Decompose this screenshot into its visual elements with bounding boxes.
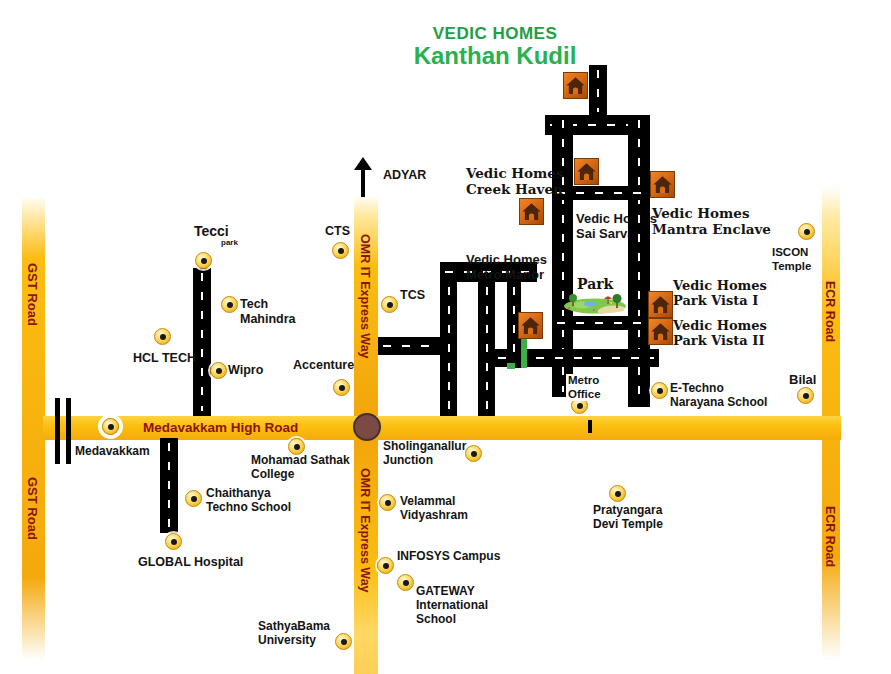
label-chaithanya: ChaithanyaTechno School: [206, 486, 291, 514]
marker-gateway: [397, 574, 414, 591]
marker-infosys: [377, 557, 394, 574]
railway-bar-1: [55, 398, 60, 464]
label-line: University: [258, 633, 330, 647]
global-road-centerline: [168, 443, 170, 528]
label-line: Vedic Homes: [673, 318, 767, 333]
label-hcl-tech: HCL TECH: [133, 351, 196, 366]
house-icon: [521, 316, 540, 335]
marker-bilal: [797, 387, 814, 404]
house-icon: [653, 175, 672, 194]
label-mohamad-sathak: Mohamad SathakCollege: [251, 453, 350, 481]
label-line: Park Vista I: [673, 293, 767, 308]
label-line: Junction: [383, 453, 466, 467]
label-pratyangara: PratyangaraDevi Temple: [593, 503, 663, 531]
house-creek-haven: [519, 198, 544, 225]
label-line: Park: [577, 276, 613, 293]
junction-circle: [353, 413, 381, 441]
label-tech-mahindra: TechMahindra: [240, 297, 296, 327]
label-line: Vedic Homes: [652, 206, 771, 222]
label-vedic-creek-haven: Vedic HomesCreek Haven: [466, 166, 564, 198]
road-label-omr-upper-label: OMR IT Express Way: [358, 234, 372, 359]
marker-wipro: [210, 362, 227, 379]
label-accenture: Accenture: [293, 358, 354, 373]
house-icon: [577, 162, 596, 181]
label-line: Tech: [240, 297, 296, 312]
label-medavakkam: Medavakkam: [75, 444, 150, 458]
marker-tech-mahindra: [221, 296, 238, 313]
label-line: Vedic Homes: [673, 278, 767, 293]
road-label-gst-lower: GST Road: [25, 477, 40, 540]
label-global-hospital: GLOBAL Hospital: [138, 555, 243, 570]
marker-chaithanya: [185, 490, 202, 507]
location-map: VEDIC HOMES Kanthan Kudil GST RoadGST Ro…: [0, 0, 891, 674]
road-north-stub: [589, 65, 607, 117]
park-illustration: [564, 291, 627, 314]
label-cts: CTS: [325, 224, 350, 239]
map-title: VEDIC HOMES Kanthan Kudil: [390, 24, 600, 70]
marker-tcs: [381, 296, 398, 313]
site-green-dash: [507, 363, 515, 369]
road-west-v1: [440, 282, 457, 416]
road-rect-mid: [552, 186, 648, 200]
label-line: GATEWAY: [416, 584, 488, 598]
project-name: Kanthan Kudil: [390, 42, 600, 70]
label-sathyabama: SathyaBamaUniversity: [258, 619, 330, 647]
west-v2-centerline: [486, 287, 488, 411]
label-vedic-park-vista-2: Vedic HomesPark Vista II: [673, 318, 767, 349]
label-line: Velammal: [400, 494, 468, 508]
house-icon: [651, 322, 670, 341]
site-green-line: [521, 335, 527, 368]
label-line: INFOSYS Campus: [397, 549, 500, 563]
label-vedic-metro-manor: Vedic HomesMetro Manor: [466, 252, 547, 283]
label-line: CTS: [325, 224, 350, 239]
label-sholinganallur: SholinganallurJunction: [383, 439, 466, 467]
road-rect-bottom: [552, 316, 648, 330]
house-park-vista-2: [648, 318, 673, 345]
road-label-gst-upper: GST Road: [25, 263, 40, 326]
house-sai-sarva: [574, 158, 599, 185]
label-velammal: VelammalVidyashram: [400, 494, 468, 522]
adyar-direction-arrow: [353, 157, 373, 197]
label-line: Mohamad Sathak: [251, 453, 350, 467]
label-line: Park Vista II: [673, 333, 767, 348]
label-line: Vedic Homes: [466, 252, 547, 267]
road-global-road: [160, 438, 178, 533]
marker-tecci-park: [195, 252, 212, 269]
rect-mid-centerline: [557, 192, 643, 194]
label-line: Vidyashram: [400, 508, 468, 522]
omr-stub-centerline: [383, 345, 437, 347]
road-tick: [588, 420, 592, 433]
west-v3-centerline: [513, 287, 515, 363]
marker-velammal: [379, 494, 396, 511]
label-line: Accenture: [293, 358, 354, 373]
label-line: TCS: [400, 288, 425, 303]
label-line: Metro: [568, 374, 601, 388]
road-tecci-road: [193, 268, 211, 416]
label-park: Park: [577, 276, 613, 293]
label-line: Vedic Homes: [466, 166, 564, 182]
house-icon: [651, 295, 670, 314]
label-vedic-mantra-enclave: Vedic HomesMantra Enclave: [652, 206, 771, 238]
label-line: Chaithanya: [206, 486, 291, 500]
label-gateway: GATEWAYInternationalSchool: [416, 584, 488, 626]
marker-e-techno: [651, 382, 668, 399]
road-omr-stub: [378, 337, 442, 355]
label-line: ADYAR: [383, 168, 426, 183]
label-adyar: ADYAR: [383, 168, 426, 183]
label-metro-office: MetroOffice: [566, 374, 603, 401]
label-line: Creek Haven: [466, 182, 564, 198]
marker-medavakkam-road: [102, 418, 119, 435]
railway-bar-2: [66, 398, 71, 464]
house-north: [563, 72, 588, 99]
label-line: Mantra Enclave: [652, 222, 771, 238]
label-line: Techno School: [206, 500, 291, 514]
label-infosys: INFOSYS Campus: [397, 549, 500, 563]
park-art: [564, 291, 627, 314]
label-iscon: ISCONTemple: [772, 246, 811, 273]
label-vedic-park-vista-1: Vedic HomesPark Vista I: [673, 278, 767, 309]
road-label-medavakkam-high-road-label: Medavakkam High Road: [143, 420, 298, 435]
road-label-omr-lower-label: OMR IT Express Way: [358, 468, 372, 593]
tecci-road-centerline: [201, 273, 203, 411]
label-line: Narayana School: [670, 395, 767, 409]
label-line: School: [416, 612, 488, 626]
house-park-vista-1: [648, 291, 673, 318]
marker-hcl-tech: [154, 328, 171, 345]
marker-sathyabama: [335, 633, 352, 650]
marker-cts: [332, 242, 349, 259]
label-line: Wipro: [228, 363, 263, 378]
marker-global-hospital: [165, 533, 182, 550]
label-line: Devi Temple: [593, 517, 663, 531]
label-e-techno: E-TechnoNarayana School: [670, 381, 767, 409]
label-line: Sholinganallur: [383, 439, 466, 453]
marker-iscon: [798, 223, 815, 240]
label-tecci-park: park: [221, 238, 238, 247]
label-line: SathyaBama: [258, 619, 330, 633]
north-stub-centerline: [597, 70, 599, 112]
label-line: Mahindra: [240, 312, 296, 327]
label-line: GLOBAL Hospital: [138, 555, 243, 570]
label-line: Temple: [772, 260, 811, 274]
label-line: College: [251, 467, 350, 481]
house-icon: [522, 202, 541, 221]
road-west-v2: [478, 282, 495, 416]
label-line: Bilal: [789, 372, 816, 387]
label-line: International: [416, 598, 488, 612]
arrow-shaft: [361, 170, 365, 197]
marker-sholinganallur: [465, 445, 482, 462]
label-line: ISCON: [772, 246, 811, 260]
west-v1-centerline: [448, 287, 450, 411]
label-wipro: Wipro: [228, 363, 263, 378]
label-line: HCL TECH: [133, 351, 196, 366]
house-site: [518, 312, 543, 339]
label-tcs: TCS: [400, 288, 425, 303]
house-icon: [566, 76, 585, 95]
rect-bottom-centerline: [557, 322, 643, 324]
brand-name: VEDIC HOMES: [390, 24, 600, 44]
marker-pratyangara: [609, 485, 626, 502]
label-line: park: [221, 238, 238, 247]
label-line: Pratyangara: [593, 503, 663, 517]
label-bilal: Bilal: [789, 372, 816, 387]
label-line: E-Techno: [670, 381, 767, 395]
label-line: Office: [568, 388, 601, 402]
road-label-ecr-lower: ECR Road: [823, 506, 837, 567]
label-line: Metro Manor: [466, 267, 547, 282]
house-mantra-enclave: [650, 171, 675, 198]
marker-accenture: [333, 379, 350, 396]
arrow-head-icon: [354, 157, 372, 170]
road-label-ecr-upper: ECR Road: [823, 281, 837, 342]
label-line: Medavakkam: [75, 444, 150, 458]
